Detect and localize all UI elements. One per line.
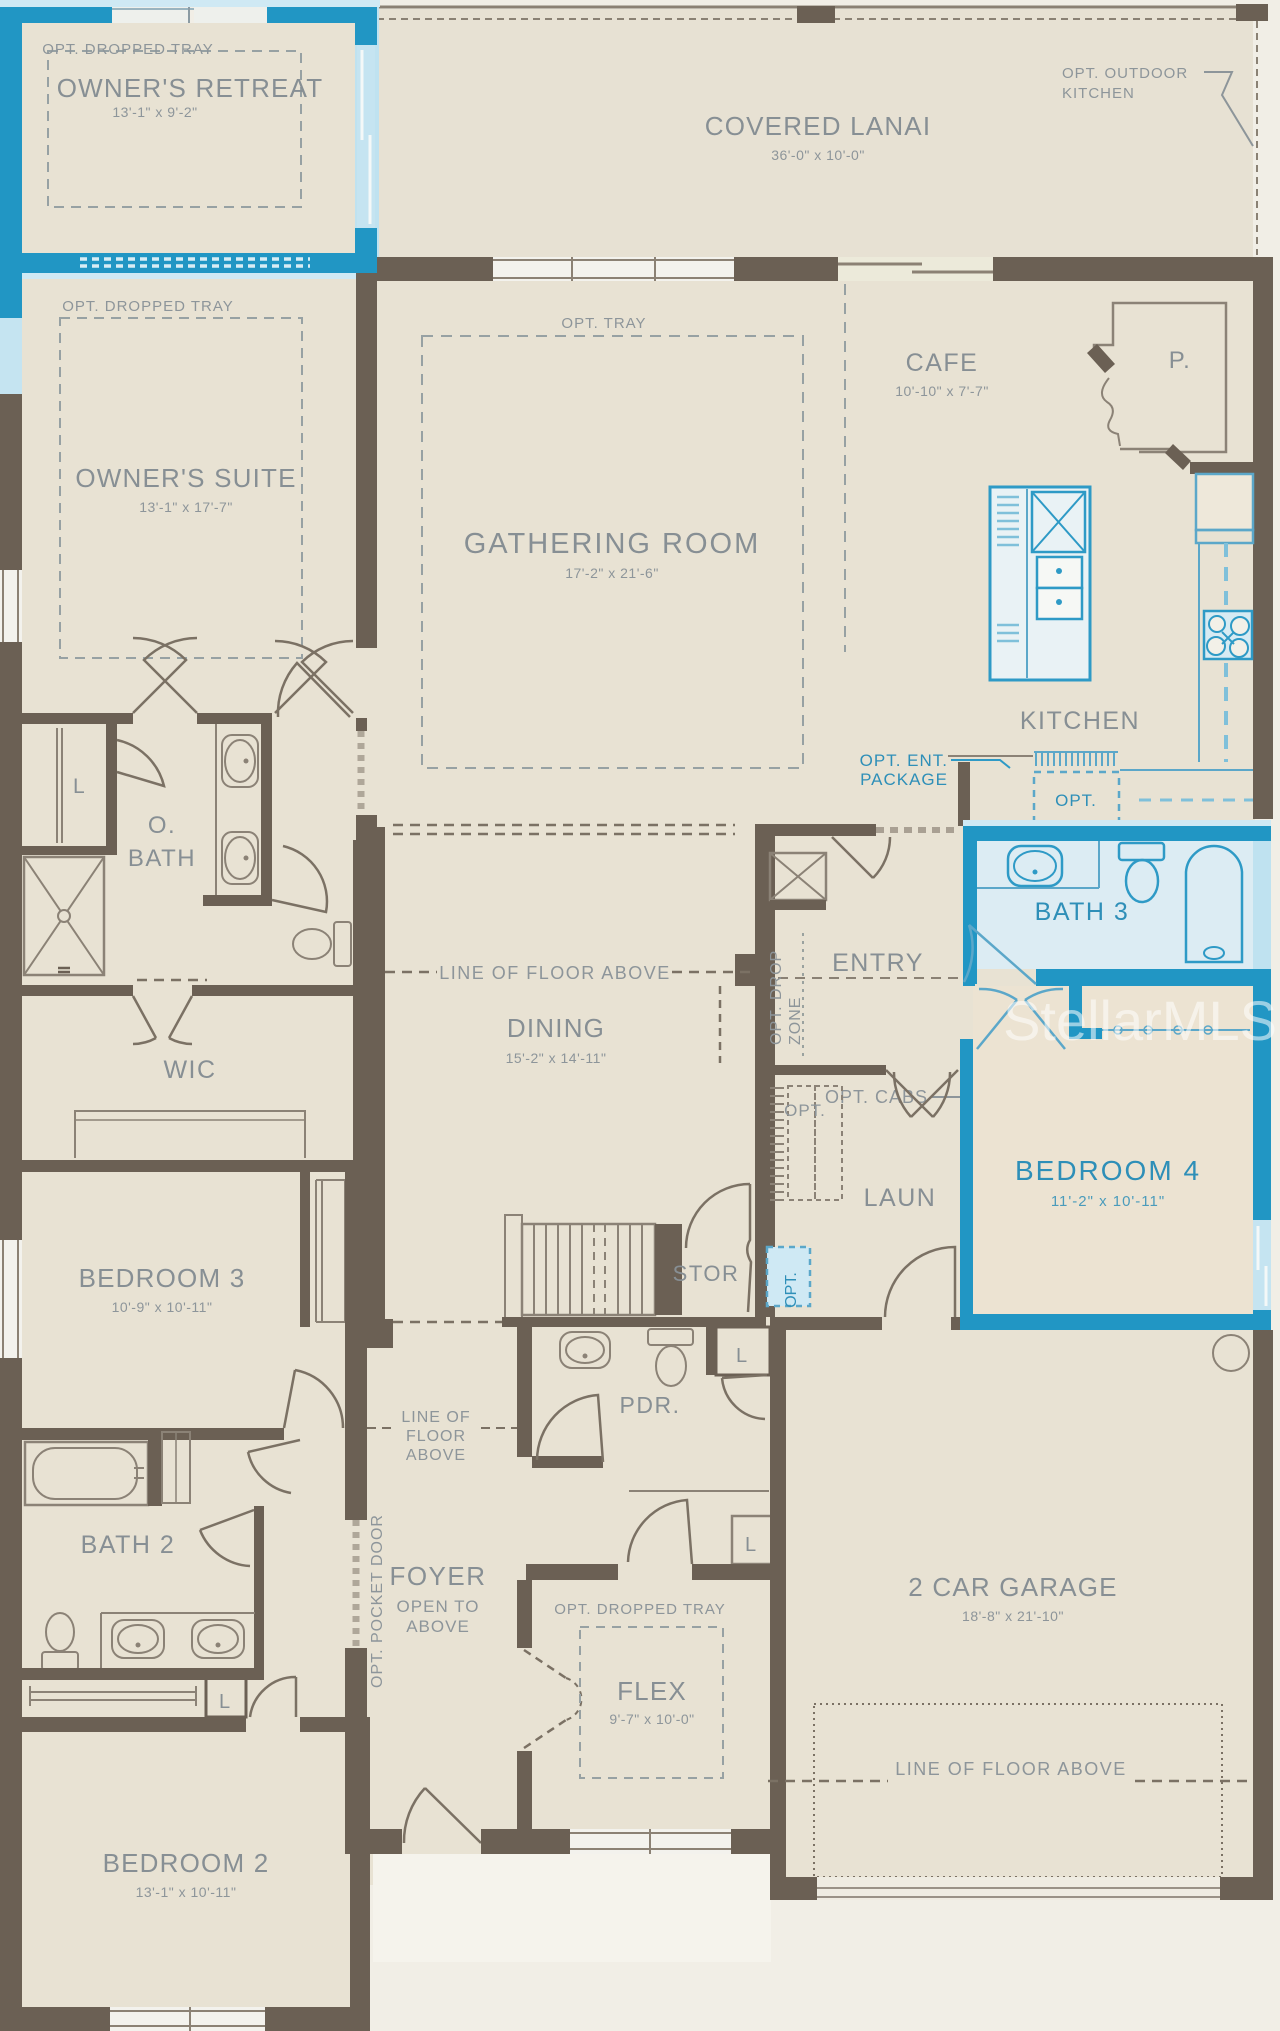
svg-text:FLOOR: FLOOR [406, 1428, 466, 1445]
svg-text:36'-0" x 10'-0": 36'-0" x 10'-0" [771, 147, 865, 163]
svg-text:LAUN: LAUN [864, 1184, 937, 1212]
svg-text:OPT. DROP: OPT. DROP [768, 950, 785, 1045]
svg-text:OPT. OUTDOOR: OPT. OUTDOOR [1062, 65, 1188, 82]
svg-text:15'-2" x 14'-11": 15'-2" x 14'-11" [506, 1050, 607, 1066]
svg-text:OWNER'S RETREAT: OWNER'S RETREAT [57, 73, 324, 103]
svg-text:BEDROOM 4: BEDROOM 4 [1015, 1155, 1201, 1186]
svg-text:13'-1" x 10'-11": 13'-1" x 10'-11" [136, 1884, 237, 1900]
svg-text:10'-10" x 7'-7": 10'-10" x 7'-7" [895, 383, 989, 399]
svg-text:KITCHEN: KITCHEN [1020, 707, 1140, 735]
svg-text:FLEX: FLEX [617, 1676, 687, 1706]
svg-text:ENTRY: ENTRY [832, 949, 924, 977]
svg-text:13'-1" x 17'-7": 13'-1" x 17'-7" [139, 499, 233, 515]
svg-text:COVERED LANAI: COVERED LANAI [705, 111, 932, 141]
svg-text:ZONE: ZONE [787, 997, 804, 1045]
svg-text:OPT. POCKET DOOR: OPT. POCKET DOOR [369, 1514, 386, 1688]
svg-text:17'-2" x 21'-6": 17'-2" x 21'-6" [565, 565, 659, 581]
svg-text:StellarMLS: StellarMLS [1003, 989, 1277, 1052]
svg-text:OPT.: OPT. [783, 1272, 800, 1308]
svg-text:L: L [219, 1691, 232, 1713]
svg-text:LINE OF: LINE OF [401, 1409, 470, 1426]
svg-text:L: L [745, 1534, 758, 1556]
svg-text:L: L [736, 1345, 749, 1367]
svg-text:ABOVE: ABOVE [406, 1617, 470, 1636]
svg-text:PDR.: PDR. [620, 1392, 681, 1418]
svg-text:BATH 3: BATH 3 [1035, 898, 1130, 926]
svg-text:10'-9" x 10'-11": 10'-9" x 10'-11" [112, 1299, 213, 1315]
svg-text:O.: O. [148, 812, 176, 839]
svg-text:OPT.: OPT. [1055, 791, 1097, 810]
svg-text:2 CAR GARAGE: 2 CAR GARAGE [908, 1572, 1117, 1602]
svg-text:CAFE: CAFE [906, 349, 979, 377]
svg-text:OPT. DROPPED TRAY: OPT. DROPPED TRAY [62, 298, 233, 315]
svg-text:PACKAGE: PACKAGE [860, 770, 948, 789]
svg-text:OPT. ENT.: OPT. ENT. [860, 751, 948, 770]
svg-text:LINE OF FLOOR ABOVE: LINE OF FLOOR ABOVE [895, 1759, 1127, 1779]
svg-text:9'-7" x 10'-0": 9'-7" x 10'-0" [609, 1711, 694, 1727]
svg-text:DINING: DINING [507, 1013, 605, 1043]
svg-text:BATH: BATH [128, 845, 196, 872]
svg-text:OWNER'S SUITE: OWNER'S SUITE [75, 463, 296, 493]
svg-text:OPT. DROPPED TRAY: OPT. DROPPED TRAY [42, 41, 213, 58]
svg-text:LINE OF FLOOR ABOVE: LINE OF FLOOR ABOVE [439, 963, 671, 983]
svg-text:KITCHEN: KITCHEN [1062, 85, 1135, 102]
svg-text:WIC: WIC [163, 1056, 216, 1084]
svg-text:OPEN TO: OPEN TO [397, 1597, 480, 1616]
svg-text:13'-1" x 9'-2": 13'-1" x 9'-2" [112, 104, 197, 120]
svg-text:OPT. DROPPED TRAY: OPT. DROPPED TRAY [554, 1601, 725, 1618]
svg-text:OPT. TRAY: OPT. TRAY [561, 315, 646, 332]
svg-text:OPT.: OPT. [784, 1101, 826, 1120]
svg-text:11'-2" x 10'-11": 11'-2" x 10'-11" [1051, 1193, 1165, 1210]
svg-text:L: L [73, 775, 86, 798]
svg-text:18'-8" x 21'-10": 18'-8" x 21'-10" [962, 1608, 1064, 1624]
svg-text:STOR: STOR [673, 1261, 740, 1286]
svg-text:GATHERING ROOM: GATHERING ROOM [464, 528, 761, 560]
svg-text:BATH 2: BATH 2 [81, 1531, 176, 1559]
svg-text:ABOVE: ABOVE [406, 1447, 466, 1464]
svg-text:FOYER: FOYER [389, 1561, 486, 1591]
svg-text:BEDROOM 2: BEDROOM 2 [103, 1848, 270, 1878]
svg-text:P.: P. [1169, 347, 1192, 374]
svg-text:BEDROOM 3: BEDROOM 3 [79, 1263, 246, 1293]
